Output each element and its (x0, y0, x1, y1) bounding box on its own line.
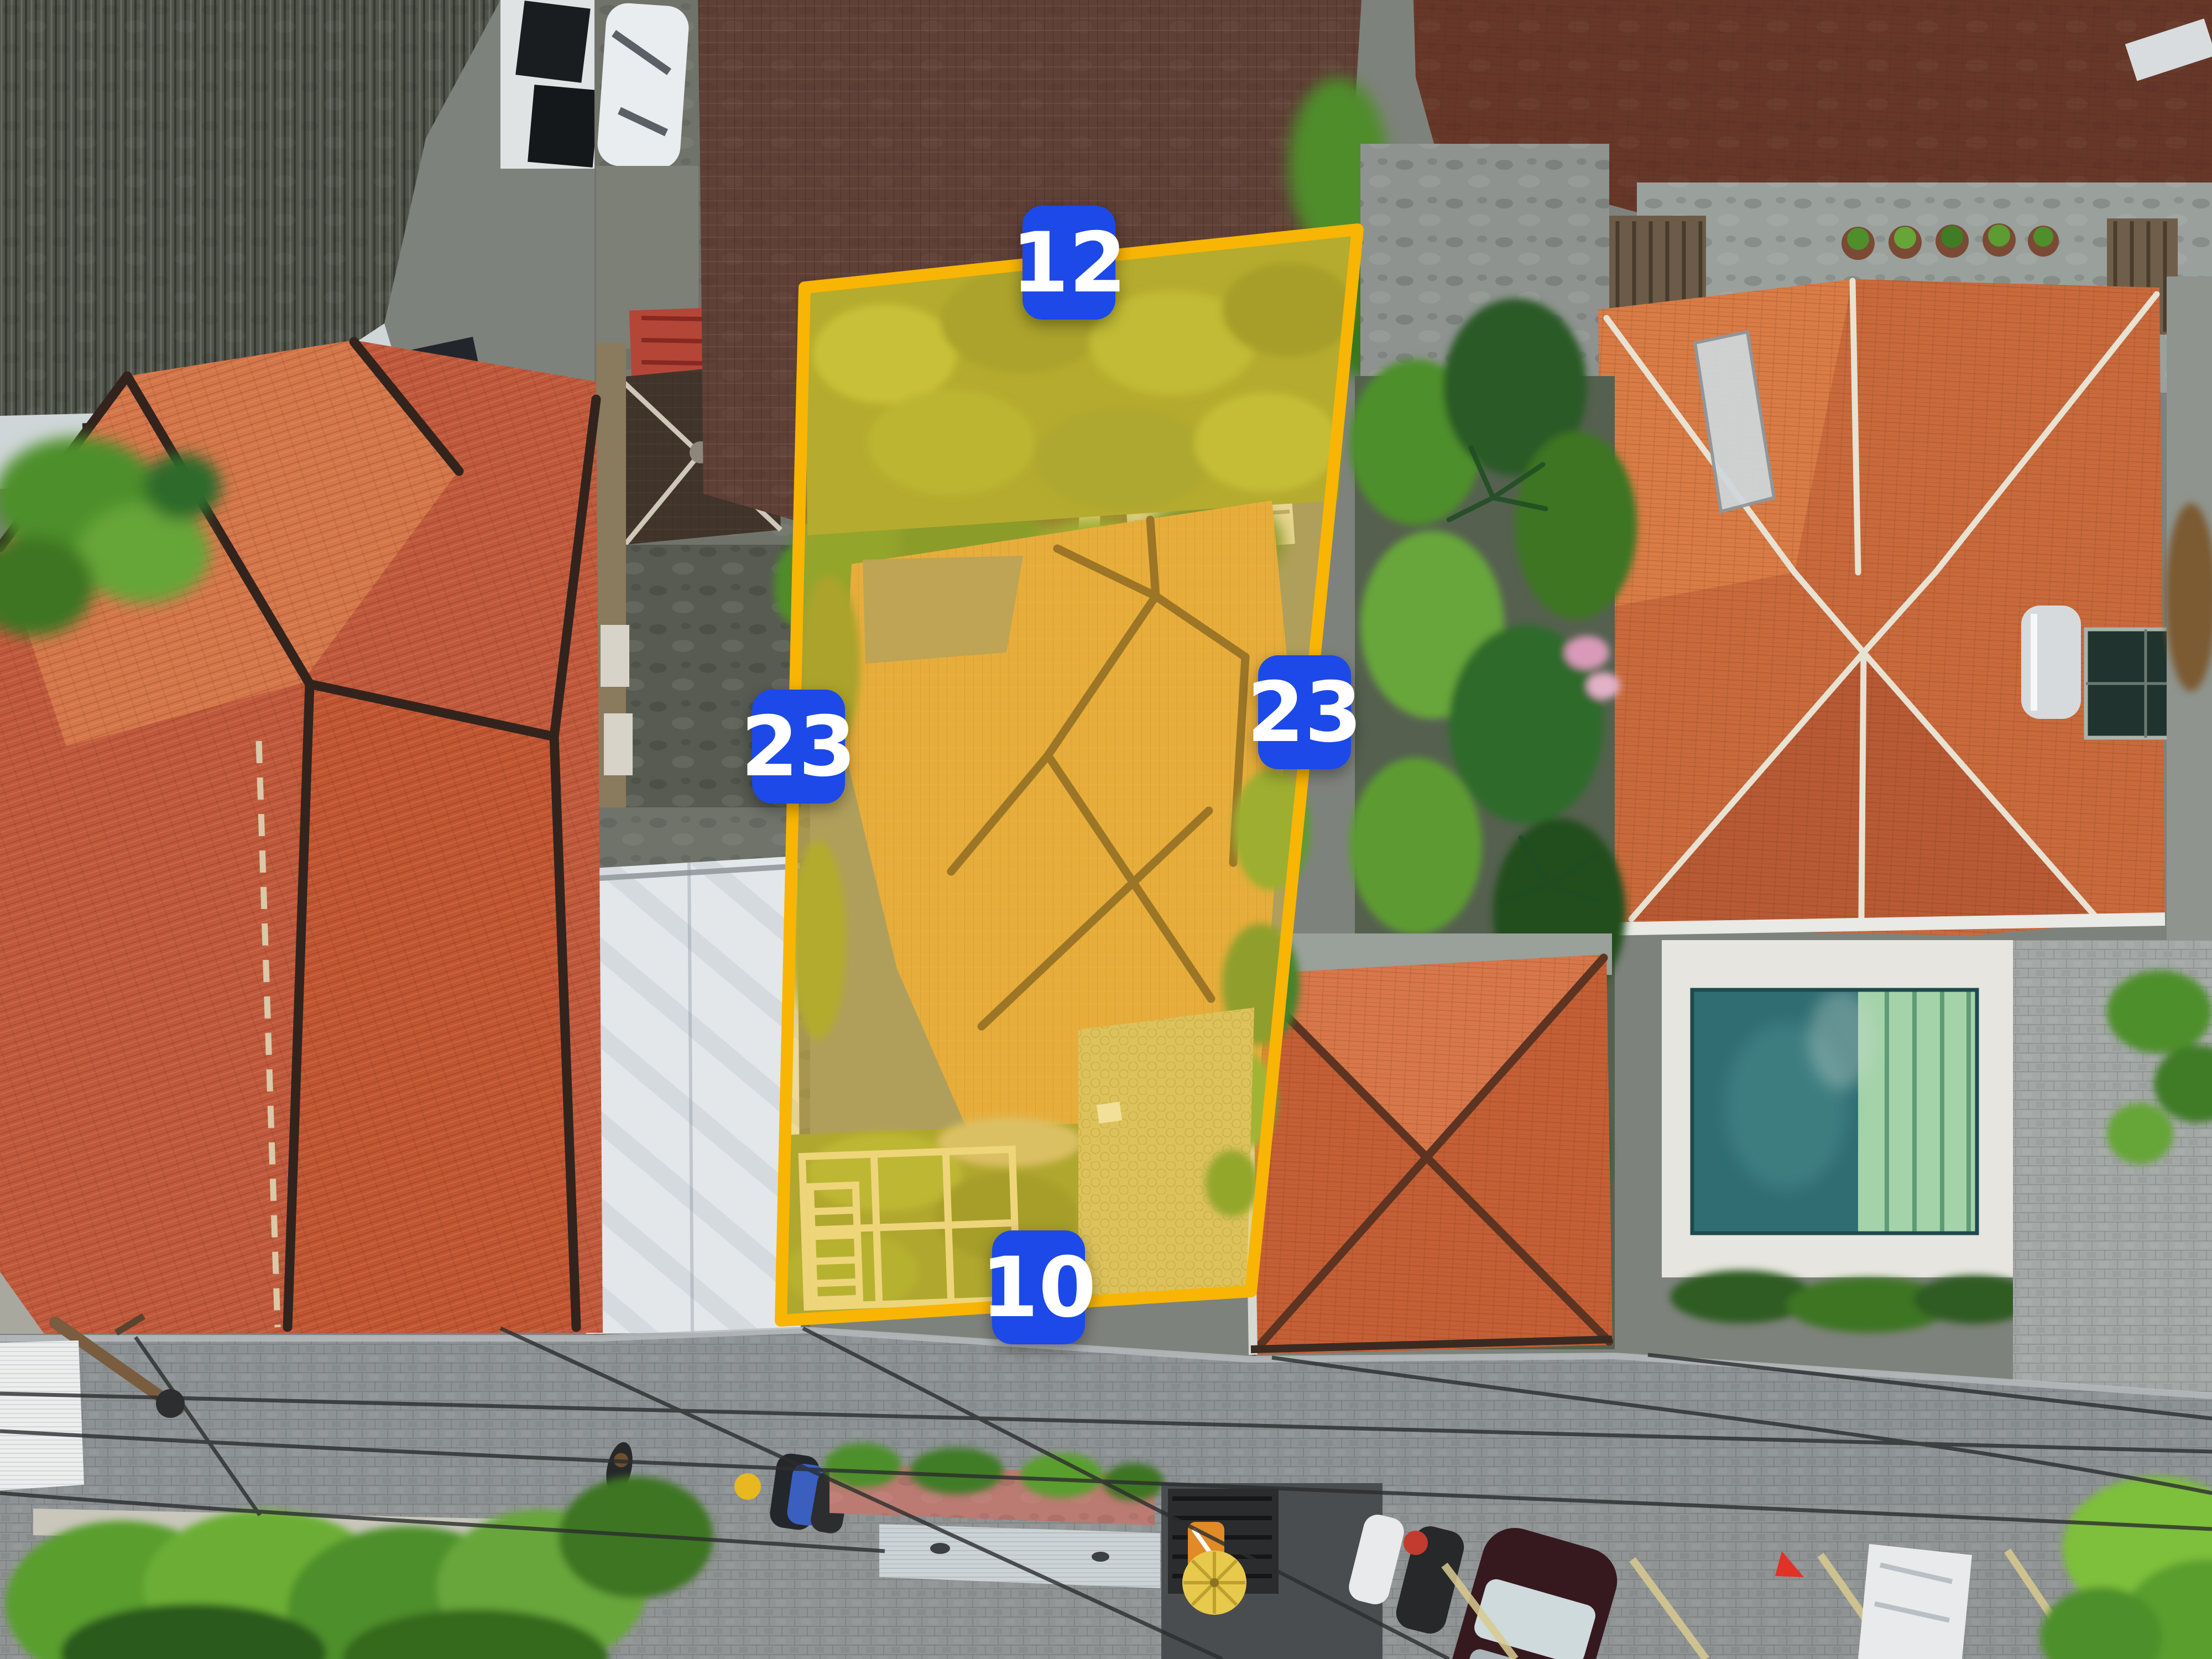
yellow-helmet (734, 1473, 761, 1500)
dimension-value-right: 23 (1247, 665, 1363, 761)
yellow-umbrella (1182, 1551, 1246, 1615)
dimension-badge-right: 23 (1247, 655, 1363, 769)
metal-strip-roof (879, 1524, 1160, 1588)
dark-carport (1161, 1483, 1383, 1659)
right-house-roof (1598, 276, 2212, 940)
dimension-value-bottom: 10 (981, 1240, 1097, 1336)
dimension-badge-bottom: 10 (981, 1230, 1097, 1344)
dimension-value-top: 12 (1011, 215, 1127, 311)
white-tarp (1858, 1544, 1972, 1659)
southeast-house (1244, 933, 1613, 1355)
pool-steps (1858, 990, 1977, 1233)
water-heater-tank (2021, 606, 2081, 719)
white-roof-far-left (0, 1340, 84, 1490)
dimension-value-left: 23 (741, 699, 857, 795)
dimension-badge-top: 12 (1011, 206, 1127, 320)
dimension-badge-left: 23 (741, 690, 857, 804)
white-metal-roof (575, 856, 801, 1334)
white-bathtub-object (596, 2, 690, 170)
aerial-photo-canvas: 12 23 23 10 (0, 0, 2212, 1659)
